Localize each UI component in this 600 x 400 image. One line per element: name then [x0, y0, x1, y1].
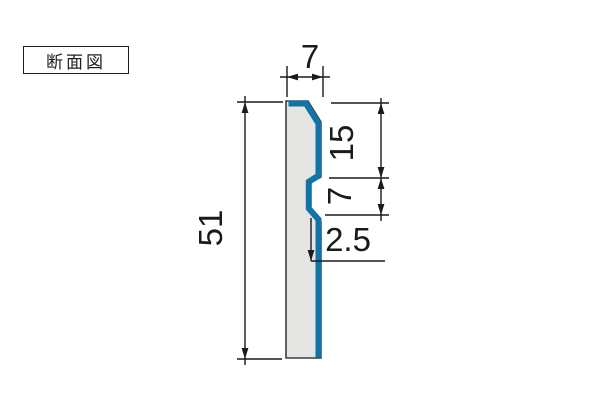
dim-top-to-notch-value: 15 [323, 125, 360, 162]
dim-top-to-notch: 15 [323, 98, 389, 178]
dim-notch-height: 7 [321, 178, 389, 221]
dim-top-to-notch-arrow-top [378, 103, 385, 114]
cross-section-diagram: 7 51 15 7 [0, 0, 600, 400]
dim-overall-height: 51 [192, 96, 283, 365]
dim-notch-height-arrow-top [378, 178, 385, 189]
dim-overall-height-arrow-top [242, 102, 249, 113]
dim-notch-height-arrow-bottom [378, 204, 385, 215]
dim-overall-height-arrow-bottom [242, 348, 249, 359]
dim-top-width-arrow-left [287, 74, 298, 81]
dim-top-width-value: 7 [301, 38, 319, 75]
dim-top-to-notch-arrow-bottom [378, 167, 385, 178]
dim-overall-height-value: 51 [192, 210, 229, 247]
dim-notch-depth-value: 2.5 [325, 221, 371, 258]
dim-notch-height-value: 7 [321, 187, 358, 205]
page-canvas: 断面図 7 51 [0, 0, 600, 400]
dim-top-width: 7 [280, 38, 330, 97]
